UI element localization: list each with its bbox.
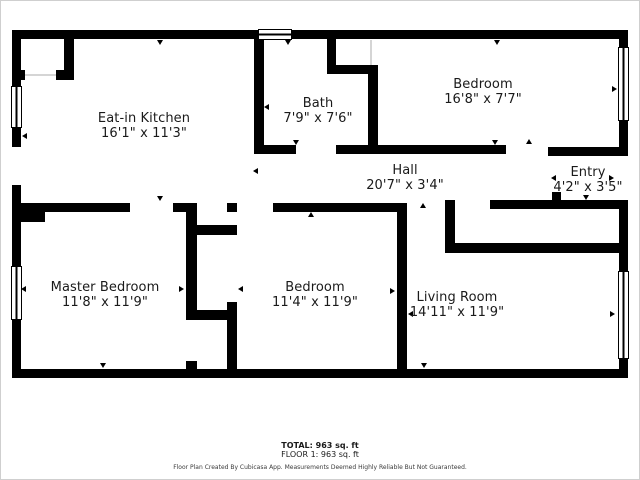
wall-segment: [227, 203, 237, 212]
wall-segment: [12, 128, 21, 147]
wall-segment: [186, 361, 197, 369]
window-icon: [618, 271, 629, 359]
door-marker-icon: [285, 40, 291, 45]
opening-line: [25, 74, 56, 76]
wall-segment: [12, 369, 628, 378]
wall-segment: [273, 203, 407, 212]
wall-segment: [548, 147, 628, 156]
door-marker-icon: [492, 140, 498, 145]
room-name: Bedroom: [398, 77, 568, 92]
room-dimensions: 7'9" x 7'6": [263, 111, 373, 126]
disclaimer-text: Floor Plan Created By Cubicasa App. Meas…: [0, 464, 640, 471]
room-dimensions: 4'2" x 3'5": [541, 180, 635, 195]
door-marker-icon: [610, 311, 615, 317]
door-marker-icon: [157, 40, 163, 45]
room-dimensions: 11'8" x 11'9": [20, 295, 190, 310]
door-marker-icon: [612, 86, 617, 92]
wall-segment: [12, 185, 21, 266]
room-dimensions: 16'8" x 7'7": [398, 92, 568, 107]
room-name: Bedroom: [240, 280, 390, 295]
room-dimensions: 14'11" x 11'9": [372, 305, 542, 320]
room-name: Master Bedroom: [20, 280, 190, 295]
door-marker-icon: [494, 40, 500, 45]
room-name: Hall: [345, 163, 465, 178]
room-dimensions: 20'7" x 3'4": [345, 178, 465, 193]
door-marker-icon: [420, 203, 426, 208]
door-marker-icon: [157, 196, 163, 201]
door-marker-icon: [22, 133, 27, 139]
wall-segment: [254, 39, 264, 147]
window-icon: [618, 47, 629, 121]
door-marker-icon: [421, 363, 427, 368]
room-label-bedroom-top: Bedroom 16'8" x 7'7": [398, 77, 568, 107]
room-name: Living Room: [372, 290, 542, 305]
wall-segment: [619, 359, 628, 378]
room-name: Bath: [263, 96, 373, 111]
wall-segment: [397, 203, 407, 369]
room-dimensions: 11'4" x 11'9": [240, 295, 390, 310]
total-area-text: TOTAL: 963 sq. ft: [0, 441, 640, 450]
wall-segment: [445, 243, 619, 253]
wall-segment: [12, 320, 21, 378]
room-name: Entry: [541, 165, 635, 180]
wall-segment: [292, 30, 628, 39]
wall-segment: [12, 70, 25, 80]
wall-segment: [186, 225, 237, 235]
floor-plan: Eat-in Kitchen 16'1" x 11'3" Bath 7'9" x…: [0, 0, 640, 480]
door-marker-icon: [308, 212, 314, 217]
room-label-bedroom-middle: Bedroom 11'4" x 11'9": [240, 280, 390, 310]
room-label-hall: Hall 20'7" x 3'4": [345, 163, 465, 193]
wall-segment: [619, 30, 628, 47]
room-label-entry: Entry 4'2" x 3'5": [541, 165, 635, 195]
wall-segment: [12, 203, 45, 222]
room-label-living-room: Living Room 14'11" x 11'9": [372, 290, 542, 320]
room-label-master-bedroom: Master Bedroom 11'8" x 11'9": [20, 280, 190, 310]
wall-segment: [254, 145, 296, 154]
opening-line: [370, 40, 372, 65]
window-icon: [258, 29, 292, 40]
door-marker-icon: [293, 140, 299, 145]
wall-segment: [56, 70, 74, 80]
room-dimensions: 16'1" x 11'3": [44, 126, 244, 141]
door-marker-icon: [583, 195, 589, 200]
wall-segment: [12, 30, 258, 39]
wall-segment: [619, 200, 628, 271]
room-label-eat-in-kitchen: Eat-in Kitchen 16'1" x 11'3": [44, 111, 244, 141]
room-name: Eat-in Kitchen: [44, 111, 244, 126]
window-icon: [11, 86, 22, 128]
room-label-bath: Bath 7'9" x 7'6": [263, 96, 373, 126]
door-marker-icon: [253, 168, 258, 174]
wall-segment: [378, 145, 506, 154]
door-marker-icon: [526, 139, 532, 144]
door-marker-icon: [100, 363, 106, 368]
floor-area-text: FLOOR 1: 963 sq. ft: [0, 450, 640, 459]
wall-segment: [227, 302, 237, 369]
